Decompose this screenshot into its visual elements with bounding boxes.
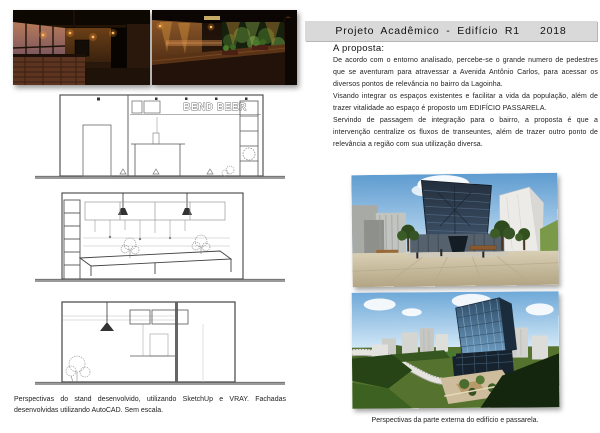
stand-interior-scene-1: [13, 10, 150, 85]
stand-frame: [62, 193, 243, 279]
partition-wall: [175, 302, 178, 382]
stand-frame: [62, 302, 235, 382]
exterior-render-walkway: [352, 291, 560, 408]
drawing-section-long: [35, 188, 285, 283]
brick-counter: [13, 54, 87, 85]
right-white-building: [499, 187, 544, 252]
plaza-ground: [352, 251, 558, 288]
stand-interior-photo-2: [152, 10, 297, 85]
right-dark-edge: [285, 18, 297, 85]
caption-edificio: Perspectivas da parte externa do edifíci…: [340, 415, 570, 426]
ceiling: [152, 10, 297, 23]
back-bar-equipment: [75, 40, 89, 56]
proposal-text-block: De acordo com o entorno analisado, perce…: [333, 55, 598, 151]
small-white-building: [372, 344, 388, 356]
stand-interior-scene-2: [152, 10, 297, 85]
drawing-section-cross: [35, 294, 285, 386]
proposal-paragraph-3: Servindo de passagem de integração para …: [333, 115, 598, 151]
proposal-paragraph-2: Visando integrar os espaços existentes e…: [333, 91, 598, 115]
window-light-strip: [166, 40, 228, 46]
walkway-aerial-scene: [352, 291, 560, 408]
drawing-elevation-bend-beer: BEND BEER: [35, 92, 285, 180]
floor: [85, 68, 150, 85]
stand-interior-photo-1: [13, 10, 150, 85]
caption-stand: Perspectivas do stand desenvolvido, util…: [14, 394, 286, 416]
proposal-paragraph-1: De acordo com o entorno analisado, perce…: [333, 55, 598, 91]
glass-tower: [456, 298, 517, 354]
ceiling-lamp: [204, 16, 220, 20]
exterior-render-tower: [351, 173, 558, 288]
title-bar: Projeto Acadêmico - Edifício R1 2018: [305, 21, 597, 41]
portfolio-page: BEND BEER: [0, 0, 600, 433]
proposal-heading: A proposta:: [333, 43, 384, 54]
tower-plaza-scene: [351, 173, 558, 288]
bend-beer-sign-text: BEND BEER: [183, 102, 247, 113]
page-title: Projeto Acadêmico - Edifício R1 2018: [335, 25, 566, 37]
